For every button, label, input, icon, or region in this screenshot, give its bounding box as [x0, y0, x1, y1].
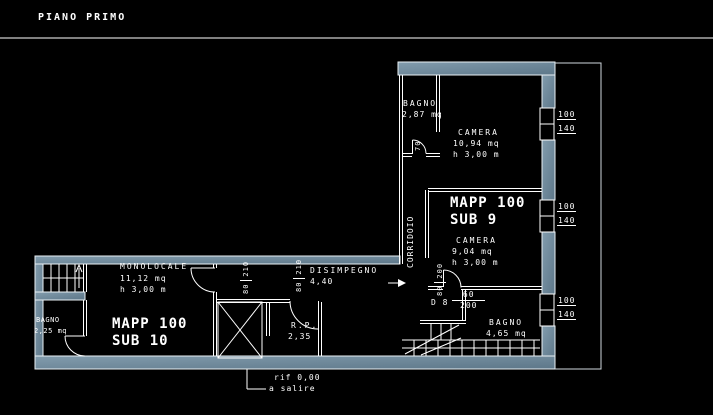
window-1-height-label: 140	[557, 124, 576, 134]
window-2-height-label: 140	[557, 216, 576, 226]
floorplan-page: PIANO PRIMO BAGNO 2,87 mq CAMERA 10,94 m…	[0, 0, 713, 415]
door-dim-d8-width: 60	[455, 290, 483, 300]
unit-label-mapp-sub10: MAPP 100	[112, 316, 187, 332]
door-dim-camera-width: 80	[436, 286, 444, 296]
area-label-camera-nord: 10,94 mq	[453, 139, 500, 148]
entrance-arrow	[388, 279, 406, 287]
area-label-monolocale: 11,12 mq	[120, 274, 167, 283]
dim-divider	[293, 278, 305, 279]
room-label-bagno-nord: BAGNO	[403, 99, 437, 108]
floorplan-drawing	[0, 0, 713, 415]
unit-label-sub9: SUB 9	[450, 212, 497, 228]
height-label-monolocale: h 3,00 m	[120, 285, 167, 294]
area-label-bagno-ovest: 2,25 mq	[34, 327, 67, 335]
door-dim-bagno-nord: 70	[414, 141, 422, 151]
door-dim-camera-height: 200	[436, 263, 444, 279]
height-label-camera-sud: h 3,00 m	[452, 258, 499, 267]
unit-label-sub10: SUB 10	[112, 333, 169, 349]
area-label-ripostiglio: 2,35	[288, 332, 311, 341]
area-label-camera-sud: 9,04 mq	[452, 247, 493, 256]
elevator-shaft	[218, 302, 262, 358]
note-line1: rif 0,00	[274, 373, 321, 382]
page-title: PIANO PRIMO	[38, 12, 126, 24]
door-dim-ripostiglio: 80 210	[293, 259, 305, 292]
window-3-width-label: 100	[557, 296, 576, 306]
height-label-camera-nord: h 3,00 m	[453, 150, 500, 159]
door-dim-monolocale-width: 80	[242, 284, 250, 294]
area-label-bagno-nord: 2,87 mq	[402, 110, 443, 119]
door-dim-d8: 60 200	[452, 290, 485, 310]
note-leader-line	[247, 369, 266, 389]
dim-divider	[434, 282, 446, 283]
room-label-corridoio: CORRIDOIO	[406, 216, 415, 268]
room-label-bagno-est: BAGNO	[489, 318, 523, 327]
door-dim-monolocale: 80 210	[240, 261, 252, 294]
staircase-west	[43, 264, 83, 292]
door-dim-camera: 80 200	[434, 263, 446, 296]
door-dim-d8-height: 200	[452, 300, 485, 311]
unit-label-mapp-sub9: MAPP 100	[450, 195, 525, 211]
window-2-width-label: 100	[557, 202, 576, 212]
door-dim-monolocale-height: 210	[242, 261, 250, 277]
dim-divider	[240, 280, 252, 281]
room-label-monolocale: MONOLOCALE	[120, 262, 188, 271]
door-dim-bagno-nord-width: 70	[414, 141, 422, 151]
window-3-height-label: 140	[557, 310, 576, 320]
room-label-ripostiglio: R.P.	[291, 321, 318, 330]
area-label-bagno-est: 4,65 mq	[486, 329, 527, 338]
note-line2: a salire	[269, 384, 316, 393]
door-label-d8: D 8	[431, 298, 448, 307]
room-label-camera-nord: CAMERA	[458, 128, 499, 137]
room-label-disimpegno: DISIMPEGNO	[310, 266, 378, 275]
window-1-width-label: 100	[557, 110, 576, 120]
door-dim-ripostiglio-height: 210	[295, 259, 303, 275]
area-label-disimpegno: 4,40	[310, 277, 333, 286]
room-label-bagno-ovest: BAGNO	[36, 316, 60, 324]
room-label-camera-sud: CAMERA	[456, 236, 497, 245]
door-dim-ripostiglio-width: 80	[295, 282, 303, 292]
